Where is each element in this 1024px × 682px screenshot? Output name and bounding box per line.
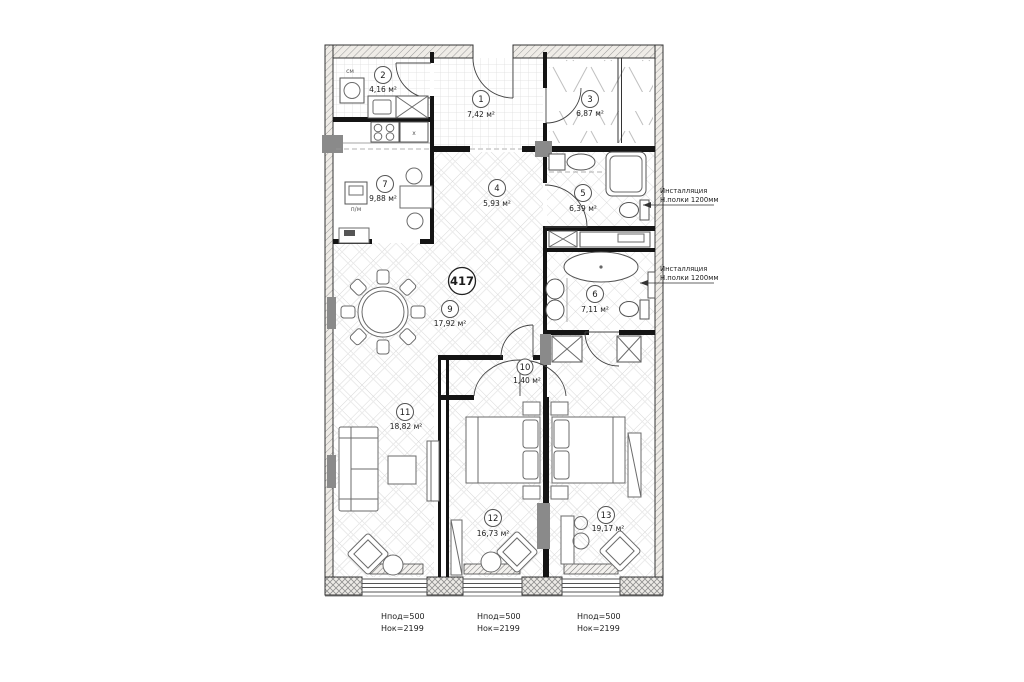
svg-text:7,42 м²: 7,42 м² [467,110,495,119]
svg-text:9: 9 [447,305,452,315]
stove [371,122,399,142]
svg-text:10: 10 [520,363,531,373]
svg-text:п/м: п/м [351,206,361,213]
svg-text:2: 2 [380,71,385,81]
svg-text:1,40 м²: 1,40 м² [513,376,541,385]
chair [407,213,423,229]
window-label-2: Нпод=500 Нок=2199 [477,612,521,633]
room-label-7: 7 9,88 м² [369,176,397,204]
wardrobe-left [552,336,582,362]
tv-console [427,441,439,501]
window-label-3: Нпод=500 Нок=2199 [577,612,621,633]
bed-12 [466,417,540,483]
windows [325,579,663,596]
shelf-band [549,231,650,247]
svg-text:6: 6 [592,290,597,300]
pier-1 [325,577,362,595]
svg-text:5: 5 [580,189,585,199]
dresser [628,433,641,497]
kitchen-sink [368,96,396,118]
svg-text:9,88 м²: 9,88 м² [369,194,397,203]
svg-text:4: 4 [494,184,499,194]
pillow [554,451,569,479]
sofa [339,427,378,511]
wall-right [655,45,663,595]
pier-3 [522,577,562,595]
sink-1 [546,279,564,299]
pillow [523,451,538,479]
window-2 [463,579,522,592]
svg-text:x: x [412,130,416,137]
svg-text:Нок=2199: Нок=2199 [477,624,520,633]
window-1 [362,579,427,592]
svg-text:Инсталляция: Инсталляция [660,187,707,195]
coffee-table [388,456,416,484]
wardrobe-right [617,336,641,362]
wardrobe-shelving-top [549,60,653,92]
apartment-number-badge: 417 [449,268,476,295]
svg-text:13: 13 [601,511,612,521]
wall-top-left [325,45,473,58]
svg-text:417: 417 [450,274,474,288]
svg-text:11: 11 [400,408,411,418]
window-label-1: Нпод=500 Нок=2199 [381,612,425,633]
svg-text:Нпод=500: Нпод=500 [477,612,521,621]
svg-text:5,93 м²: 5,93 м² [483,199,511,208]
svg-text:7: 7 [382,180,387,190]
svg-text:12: 12 [488,514,499,524]
pillow [554,420,569,448]
desk [400,186,432,208]
shaft-wall-inner [446,357,449,577]
svg-text:Нпод=500: Нпод=500 [381,612,425,621]
svg-text:Нпод=500: Нпод=500 [577,612,621,621]
pouf [383,555,403,575]
closet-x [549,231,577,247]
svg-text:Нок=2199: Нок=2199 [577,624,620,633]
desk [561,516,574,564]
svg-text:3: 3 [587,95,592,105]
svg-text:Н.полки 1200мм: Н.полки 1200мм [660,196,718,204]
svg-text:6,39 м²: 6,39 м² [569,204,597,213]
dining-set [341,270,425,354]
svg-text:17,92 м²: 17,92 м² [434,319,467,328]
floor-plan-drawing: 1 7,42 м² 2 4,16 м² 3 6,87 м² 4 5,93 м² … [0,0,1024,682]
washer-box [549,154,565,170]
wall-top-right [513,45,663,58]
pier-2 [427,577,463,595]
nightstand [551,486,568,499]
svg-text:Н.полки 1200мм: Н.полки 1200мм [660,274,718,282]
svg-text:4,16 м²: 4,16 м² [369,85,397,94]
svg-text:19,17 м²: 19,17 м² [592,524,625,533]
svg-text:16,73 м²: 16,73 м² [477,529,510,538]
window-3 [562,579,620,592]
dishwasher [345,182,367,204]
svg-text:18,82 м²: 18,82 м² [390,422,423,431]
nightstand [551,402,568,415]
pouf [481,552,501,572]
svg-text:Инсталляция: Инсталляция [660,265,707,273]
svg-text:см: см [346,68,354,75]
floor-plan-page: 1 7,42 м² 2 4,16 м² 3 6,87 м² 4 5,93 м² … [0,0,1024,682]
chair [406,168,422,184]
shower [606,152,646,196]
svg-text:6,87 м²: 6,87 м² [576,109,604,118]
shelf-niche [648,272,655,298]
svg-text:Нок=2199: Нок=2199 [381,624,424,633]
pillow [523,420,538,448]
wardrobe-mirror [451,520,462,575]
sink [567,154,595,170]
dining-table [358,287,408,337]
cabinet-x [396,96,428,118]
pier-4 [620,577,663,595]
svg-text:1: 1 [478,95,483,105]
bed-13 [552,417,625,483]
radiator-3 [564,564,618,574]
nightstand [523,486,540,499]
svg-text:7,11 м²: 7,11 м² [581,305,609,314]
sink-2 [546,300,564,320]
nightstand [523,402,540,415]
